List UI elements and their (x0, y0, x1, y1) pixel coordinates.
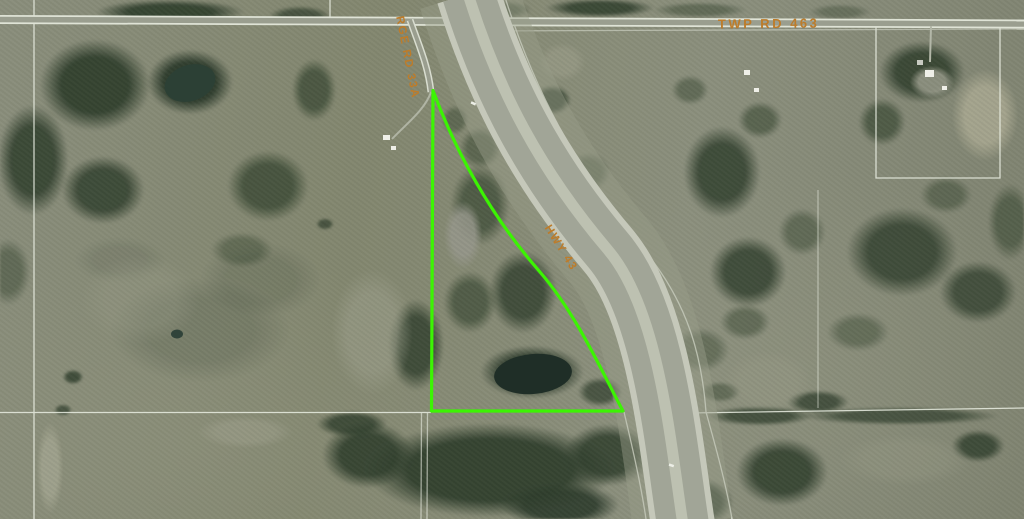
building (925, 70, 934, 77)
building (383, 135, 390, 140)
building (391, 146, 396, 150)
pond (171, 330, 183, 339)
label-township-road: TWP RD 463 (718, 15, 819, 31)
building (754, 88, 759, 92)
survey-line (688, 408, 1024, 413)
survey-line (421, 413, 422, 519)
pond (160, 58, 221, 108)
pond (492, 351, 573, 398)
farm-driveway (930, 26, 931, 62)
building (744, 70, 750, 75)
building (942, 86, 947, 90)
building (917, 60, 923, 65)
parcel-boundary-rect (876, 26, 1000, 178)
satellite-map[interactable]: TWP RD 463 RGE RD 33A HWY 43 (0, 0, 1024, 519)
survey-line (427, 413, 428, 519)
highway-road (468, 0, 683, 519)
map-overlay (0, 0, 1024, 519)
